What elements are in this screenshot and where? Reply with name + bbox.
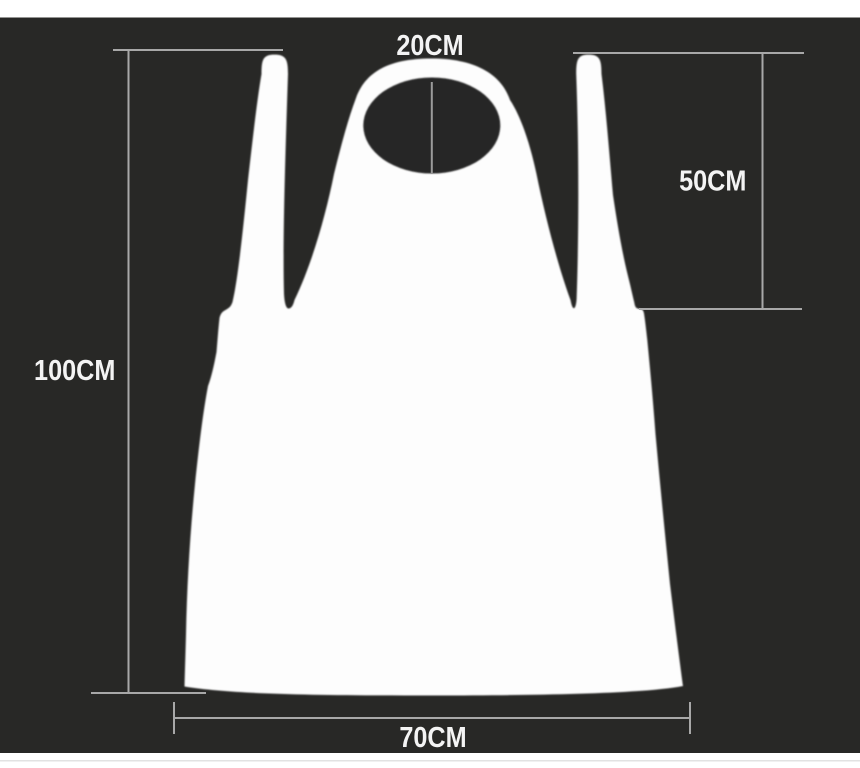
svg-text:20CM: 20CM bbox=[396, 28, 463, 61]
svg-text:100CM: 100CM bbox=[34, 353, 115, 386]
svg-text:50CM: 50CM bbox=[679, 164, 746, 197]
svg-text:70CM: 70CM bbox=[399, 720, 466, 753]
